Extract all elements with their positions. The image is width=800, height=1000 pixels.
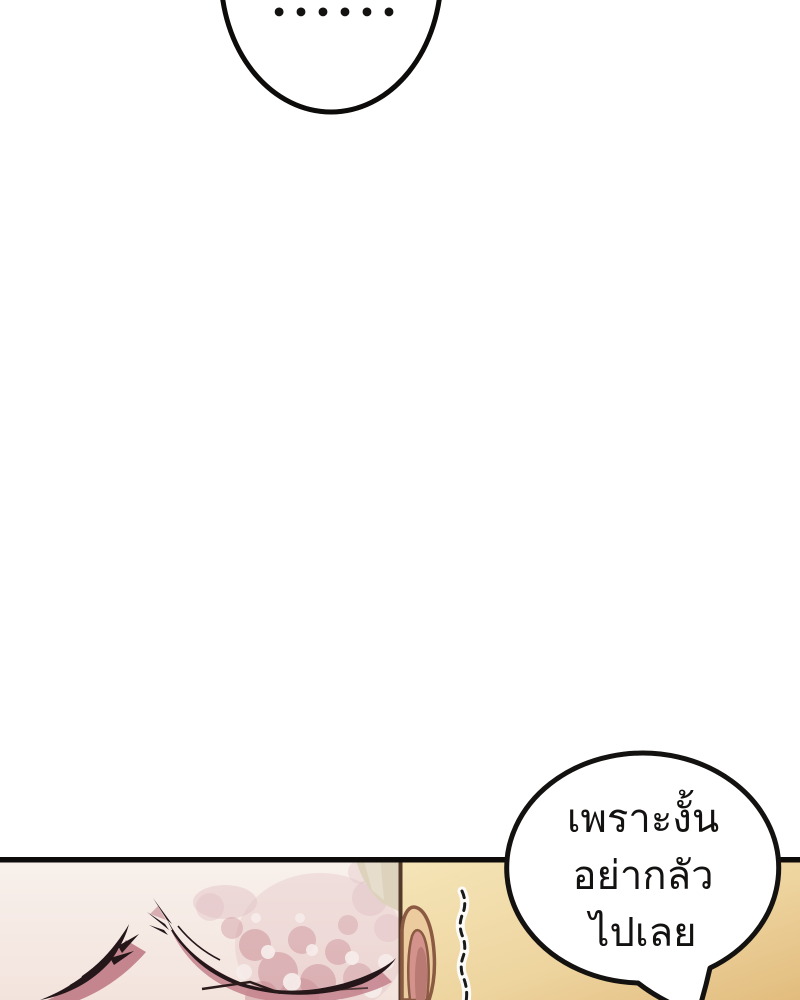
comic-page: •••••• เพราะงั้น อย่ากลัว ไปเลย — [0, 0, 800, 1000]
top-bubble-ellipsis: •••••• — [231, 0, 437, 26]
speech-line-2: อย่ากลัว — [503, 848, 783, 905]
ear — [402, 907, 434, 1000]
speech-line-3: ไปเลย — [503, 905, 783, 962]
speech-bubble-text: เพราะงั้น อย่ากลัว ไปเลย — [503, 791, 783, 962]
speech-line-1: เพราะงั้น — [503, 791, 783, 848]
trembling-line — [460, 891, 466, 1000]
